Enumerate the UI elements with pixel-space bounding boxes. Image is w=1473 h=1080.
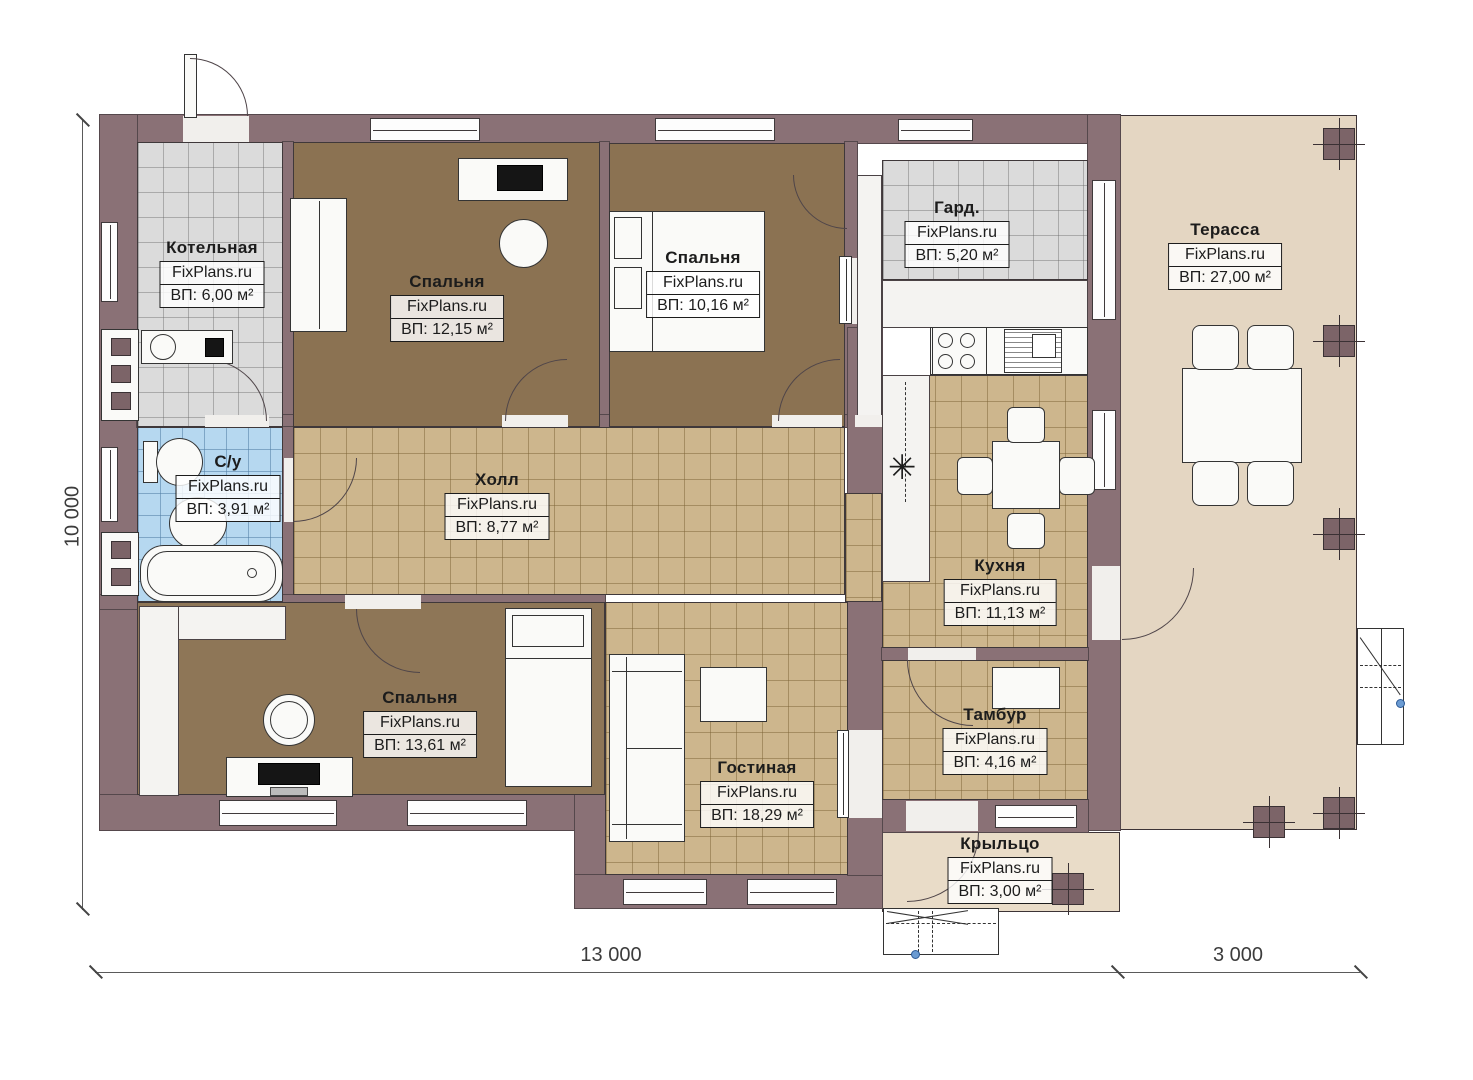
sliding-door	[837, 730, 849, 818]
bed-fold-line	[506, 658, 591, 659]
step-dash	[886, 923, 996, 924]
utility-cell	[111, 568, 131, 586]
room-label-bedroom-2: Спальня FixPlans.ru ВП: 10,16 м²	[646, 248, 760, 318]
chair	[1247, 461, 1294, 506]
watermark: FixPlans.ru	[364, 712, 476, 735]
window	[101, 222, 118, 302]
burner	[938, 354, 953, 369]
monitor	[258, 763, 320, 785]
room-name: С/у	[176, 452, 281, 472]
boiler-dial	[150, 334, 176, 360]
dimension-bottom-main-value: 13 000	[556, 944, 666, 967]
kitchen-table	[992, 441, 1060, 509]
room-label-wardrobe: Гард. FixPlans.ru ВП: 5,20 м²	[905, 198, 1010, 268]
room-name: Спальня	[363, 688, 477, 708]
watermark: FixPlans.ru	[647, 272, 759, 295]
wall-bottom-bedroom	[100, 795, 605, 830]
chair	[499, 219, 548, 268]
floor-hall	[293, 427, 845, 595]
column	[1323, 325, 1355, 357]
window	[219, 800, 337, 826]
watermark: FixPlans.ru	[906, 222, 1009, 245]
column	[1253, 806, 1285, 838]
room-name: Холл	[445, 470, 550, 490]
step-marker-dot	[911, 950, 920, 959]
room-label-bathroom: С/у FixPlans.ru ВП: 3,91 м²	[176, 452, 281, 522]
window	[1092, 410, 1116, 490]
floor-hall-passage	[845, 493, 882, 602]
bathtub-drain	[247, 568, 257, 578]
room-name: Крыльцо	[948, 834, 1053, 854]
room-area: ВП: 11,13 м²	[945, 603, 1056, 625]
pillow	[614, 217, 642, 259]
window	[101, 447, 118, 522]
hall-niche	[857, 175, 882, 425]
column	[1323, 518, 1355, 550]
room-area: ВП: 10,16 м²	[647, 295, 759, 317]
window	[655, 118, 775, 141]
door-opening	[284, 458, 293, 522]
room-name: Терасса	[1168, 220, 1282, 240]
watermark: FixPlans.ru	[177, 476, 280, 499]
door-opening	[345, 595, 421, 609]
pillow	[512, 615, 584, 647]
wardrobe-shelf	[882, 280, 1088, 328]
watermark: FixPlans.ru	[945, 580, 1056, 603]
cabinet	[992, 667, 1060, 709]
room-label-kitchen: Кухня FixPlans.ru ВП: 11,13 м²	[944, 556, 1057, 626]
door-arc-boiler-exterior	[190, 58, 248, 116]
door-opening	[906, 801, 978, 831]
door-opening	[183, 116, 249, 142]
room-name: Тамбур	[943, 705, 1048, 725]
window	[747, 879, 837, 905]
watermark: FixPlans.ru	[1169, 244, 1281, 267]
column	[1323, 797, 1355, 829]
room-label-porch: Крыльцо FixPlans.ru ВП: 3,00 м²	[948, 834, 1053, 904]
column	[1323, 128, 1355, 160]
chair	[1247, 325, 1294, 370]
chair	[1192, 461, 1239, 506]
wall-bedroom1-bedroom2	[600, 142, 609, 425]
room-name: Спальня	[390, 272, 504, 292]
room-name: Котельная	[160, 238, 265, 258]
room-label-terrace: Терасса FixPlans.ru ВП: 27,00 м²	[1168, 220, 1282, 290]
room-name: Спальня	[646, 248, 760, 268]
fridge-marker: ✳	[888, 448, 917, 488]
wardrobe	[290, 198, 347, 332]
sink-basin	[1032, 334, 1056, 358]
keyboard	[270, 787, 308, 796]
room-area: ВП: 5,20 м²	[906, 245, 1009, 267]
chair	[1059, 457, 1095, 495]
sliding-door	[839, 256, 852, 324]
terrace-steps	[1357, 628, 1404, 745]
burner	[938, 333, 953, 348]
step-marker-dot	[1396, 699, 1405, 708]
utility-cell	[111, 541, 131, 559]
utility-cell	[111, 392, 131, 410]
window	[370, 118, 480, 141]
room-area: ВП: 12,15 м²	[391, 319, 503, 341]
pillow	[614, 267, 642, 309]
watermark: FixPlans.ru	[944, 729, 1047, 752]
chair	[957, 457, 993, 495]
room-label-living-room: Гостиная FixPlans.ru ВП: 18,29 м²	[700, 758, 814, 828]
room-label-hall: Холл FixPlans.ru ВП: 8,77 м²	[445, 470, 550, 540]
chair	[1192, 325, 1239, 370]
dining-table	[1182, 368, 1302, 463]
utility-cell	[111, 338, 131, 356]
room-area: ВП: 13,61 м²	[364, 735, 476, 757]
room-area: ВП: 18,29 м²	[701, 805, 813, 827]
plant-pot-inner	[270, 701, 308, 739]
burner	[960, 333, 975, 348]
door-opening	[908, 648, 976, 660]
sofa	[609, 654, 685, 842]
utility-cell	[111, 365, 131, 383]
door-opening	[1092, 566, 1120, 640]
watermark: FixPlans.ru	[161, 262, 264, 285]
watermark: FixPlans.ru	[446, 494, 549, 517]
door-opening	[855, 415, 882, 427]
room-area: ВП: 3,00 м²	[949, 881, 1052, 903]
window	[995, 805, 1077, 828]
burner	[960, 354, 975, 369]
chair	[1007, 513, 1045, 549]
window	[623, 879, 707, 905]
room-label-boiler: Котельная FixPlans.ru ВП: 6,00 м²	[160, 238, 265, 308]
watermark: FixPlans.ru	[391, 296, 503, 319]
window	[407, 800, 527, 826]
porch-steps	[883, 908, 999, 955]
dimension-line-bottom	[95, 972, 1360, 973]
room-label-tambour: Тамбур FixPlans.ru ВП: 4,16 м²	[943, 705, 1048, 775]
boiler-burner	[205, 338, 224, 357]
room-name: Гостиная	[700, 758, 814, 778]
window	[1092, 180, 1116, 320]
door-opening	[848, 730, 882, 818]
dimension-left-value: 10 000	[62, 462, 85, 572]
room-area: ВП: 4,16 м²	[944, 752, 1047, 774]
room-area: ВП: 27,00 м²	[1169, 267, 1281, 289]
window	[898, 119, 973, 141]
watermark: FixPlans.ru	[949, 858, 1052, 881]
room-label-bedroom-3: Спальня FixPlans.ru ВП: 13,61 м²	[363, 688, 477, 758]
room-area: ВП: 6,00 м²	[161, 285, 264, 307]
laptop	[497, 165, 543, 191]
watermark: FixPlans.ru	[701, 782, 813, 805]
tv-stand	[700, 667, 767, 722]
column	[1052, 873, 1084, 905]
chair	[1007, 407, 1045, 443]
floor-plan: ✳ Котельная FixPlans.ru ВП: 6,00 м² Спал…	[0, 0, 1473, 1080]
room-area: ВП: 8,77 м²	[446, 517, 549, 539]
dimension-bottom-right-value: 3 000	[1188, 944, 1288, 967]
closet	[139, 606, 179, 796]
room-name: Кухня	[944, 556, 1057, 576]
room-area: ВП: 3,91 м²	[177, 499, 280, 521]
room-label-bedroom-1: Спальня FixPlans.ru ВП: 12,15 м²	[390, 272, 504, 342]
room-name: Гард.	[905, 198, 1010, 218]
